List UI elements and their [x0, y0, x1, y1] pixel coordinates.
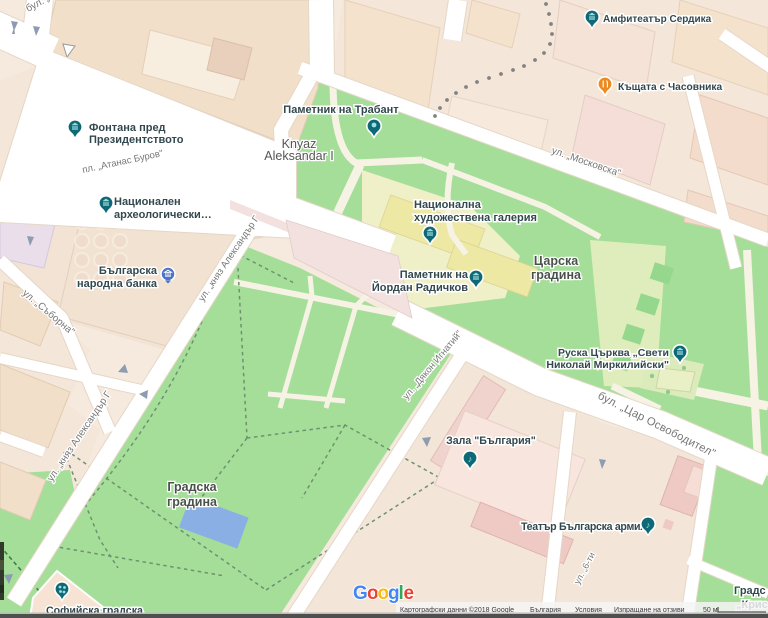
svg-text:Градска: Градска	[167, 480, 217, 494]
svg-text:Градс: Градс	[734, 585, 766, 597]
svg-text:археологически…: археологически…	[114, 209, 212, 221]
svg-text:градина: градина	[167, 495, 218, 509]
svg-text:Паметник на: Паметник на	[400, 269, 469, 281]
svg-text:Руска Църква „Свети: Руска Църква „Свети	[558, 347, 669, 359]
svg-text:Национална: Национална	[414, 199, 482, 211]
svg-text:Национален: Национален	[114, 196, 181, 208]
svg-text:художествена галерия: художествена галерия	[414, 212, 537, 224]
svg-text:Йордан Радичков: Йордан Радичков	[372, 281, 468, 294]
svg-text:градина: градина	[531, 268, 582, 282]
svg-text:Президентството: Президентството	[89, 134, 184, 146]
svg-text:Николай Миркилийски": Николай Миркилийски"	[546, 359, 669, 371]
svg-text:Фонтана пред: Фонтана пред	[89, 122, 166, 134]
svg-text:Къщата с Часовника: Къщата с Часовника	[618, 82, 723, 93]
svg-text:народна банка: народна банка	[77, 278, 158, 290]
svg-text:Зала "България": Зала "България"	[446, 435, 536, 447]
svg-text:♪: ♪	[468, 454, 473, 464]
svg-text:Паметник на Трабант: Паметник на Трабант	[283, 104, 399, 116]
svg-text:♪: ♪	[646, 520, 651, 530]
svg-text:e: e	[404, 583, 415, 604]
svg-text:G: G	[353, 583, 368, 604]
svg-text:Амфитеатър Сердика: Амфитеатър Сердика	[603, 13, 712, 25]
svg-text:Театър Българска армия: Театър Българска армия	[521, 521, 646, 533]
svg-text:Aleksandar I: Aleksandar I	[264, 149, 333, 163]
svg-text:Царска: Царска	[534, 254, 579, 268]
svg-text:Българска: Българска	[99, 265, 158, 277]
